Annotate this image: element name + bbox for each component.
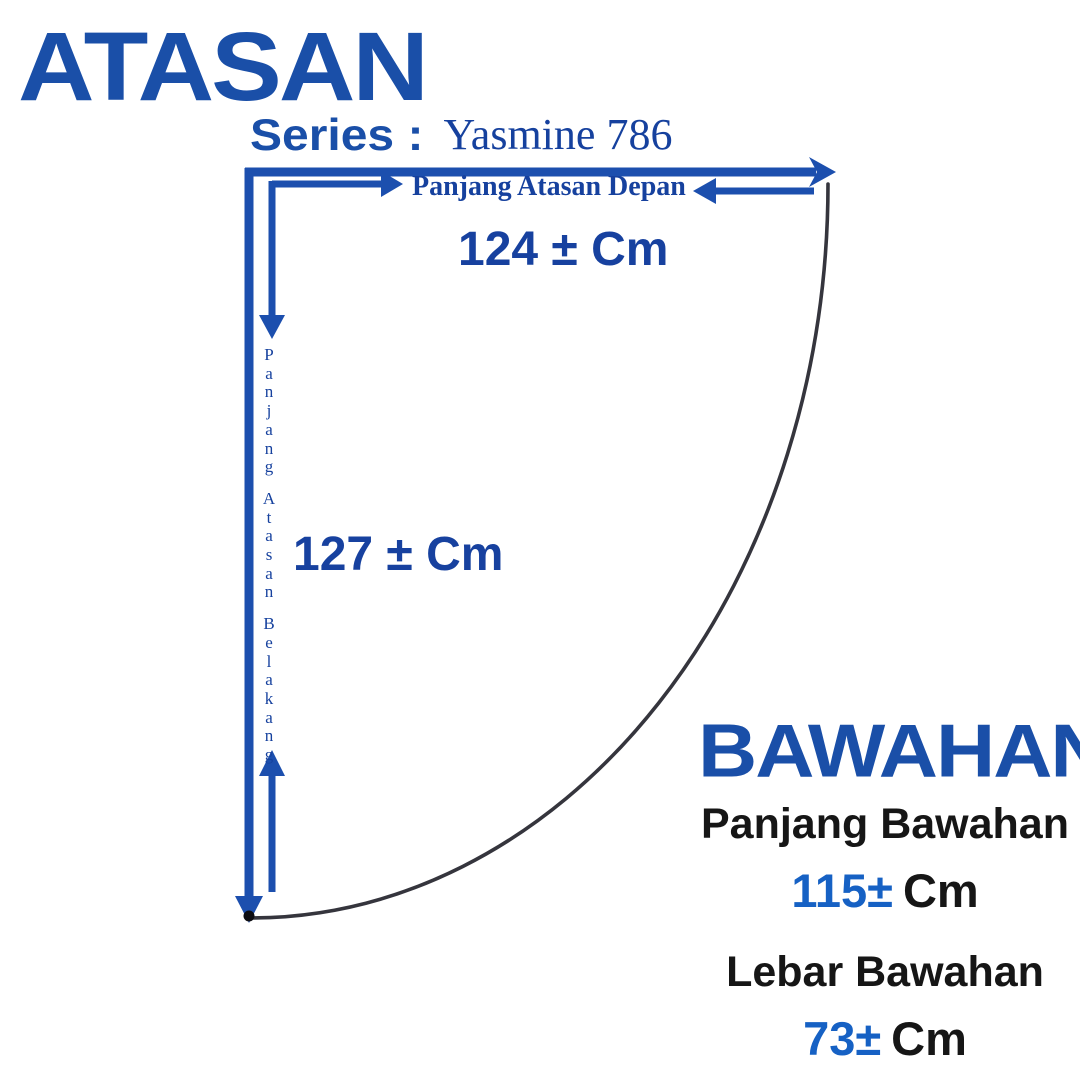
back-length-vertical-label: PanjangAtasanBelakang	[256, 346, 282, 765]
series-subtitle: Series : Yasmine 786	[250, 106, 672, 161]
corner-pointer-down-arrowhead-icon	[259, 315, 285, 339]
series-label: Series :	[250, 110, 423, 161]
hem-curve-end-dot	[244, 911, 255, 922]
front-length-label: Panjang Atasan Depan	[412, 171, 686, 203]
panjang-bawahan-block: Panjang Bawahan 115±Cm	[695, 800, 1075, 918]
atasan-title: ATASAN	[18, 18, 426, 116]
front-length-value: 124 ± Cm	[458, 222, 668, 277]
lebar-bawahan-value: 73±	[803, 1012, 881, 1065]
measurement-diagram	[0, 0, 1080, 1080]
series-value: Yasmine 786	[443, 109, 672, 160]
lebar-bawahan-unit: Cm	[891, 1012, 967, 1065]
panjang-bawahan-value: 115±	[791, 864, 893, 917]
poster-canvas: ATASAN Series : Yasmine 786 Panjang Atas…	[0, 0, 1080, 1080]
panjang-bawahan-label: Panjang Bawahan	[695, 800, 1075, 849]
back-length-value: 127 ± Cm	[293, 527, 503, 582]
front-length-left-arrowhead-icon	[693, 178, 716, 204]
lebar-bawahan-valuerow: 73±Cm	[695, 1011, 1075, 1066]
lebar-bawahan-label: Lebar Bawahan	[695, 948, 1075, 997]
panjang-bawahan-unit: Cm	[903, 864, 979, 917]
lebar-bawahan-block: Lebar Bawahan 73±Cm	[695, 948, 1075, 1066]
bawahan-title: BAWAHAN	[698, 714, 1080, 789]
panjang-bawahan-valuerow: 115±Cm	[695, 863, 1075, 918]
